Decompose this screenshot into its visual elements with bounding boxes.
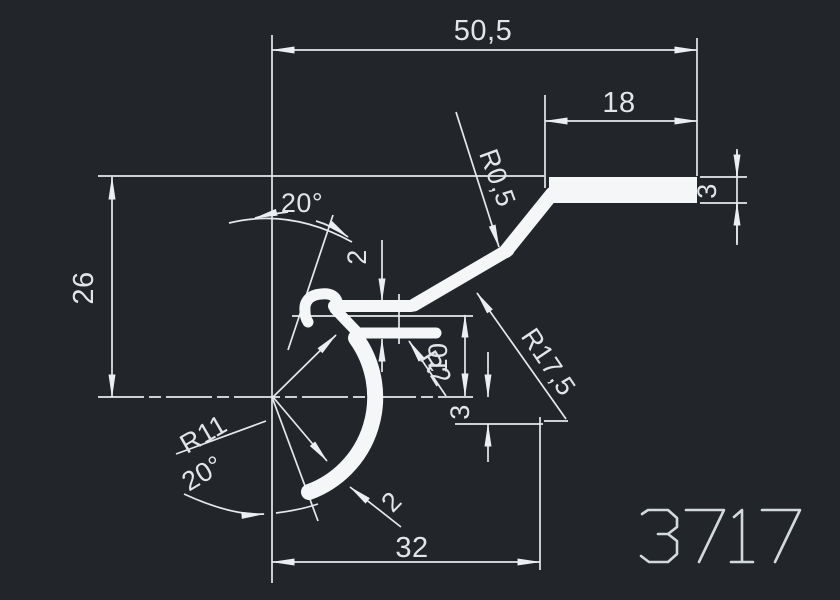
dim-text-20-bottom: 20° [176,450,228,498]
angle-arc-top [229,218,352,242]
dim-text-18: 18 [602,87,635,119]
digit-7-first [686,510,724,562]
profile-web [335,309,357,332]
digit-7-second [762,510,800,562]
dimension-texts: 50,5 18 3 26 20° 2 R0,5 R17,5 R2 10 3 R1… [68,15,722,564]
dim-text-2-top: 2 [342,249,372,265]
digit-3-upper [642,510,677,534]
dim-text-3-mid: 3 [445,404,475,420]
dim-text-10: 10 [423,342,453,373]
profile-drawing-3717: 50,5 18 3 26 20° 2 R0,5 R17,5 R2 10 3 R1… [0,0,840,600]
angle-ref-line-top [288,215,333,350]
angle-ref-line-bottom [272,397,318,521]
construction-lines [98,35,747,583]
angle-arc-top-right-arrow [316,221,348,237]
profile-wall-shallow [414,250,508,305]
wall-thickness-inner-pointer [273,397,327,461]
digit-1 [731,510,753,562]
angle-arc-bottom [276,504,318,513]
profile-arc-wall [309,338,375,492]
angle-leader-bottom [184,494,264,514]
profile-outline [305,177,697,492]
dim-text-50-5: 50,5 [454,15,512,47]
dim-text-r05: R0,5 [473,145,521,211]
dim-text-2-bottom: 2 [375,486,407,518]
r11-pointer-line [273,335,336,397]
profile-top-flange [549,177,697,203]
dim-text-26: 26 [68,271,100,304]
dim-text-32: 32 [395,532,428,564]
dim-text-20-top: 20° [281,188,323,218]
part-number-text: 3717 [641,510,800,562]
digit-3-lower [641,534,677,562]
cad-drawing-canvas: 50,5 18 3 26 20° 2 R0,5 R17,5 R2 10 3 R1… [0,0,840,600]
dim-text-3-right: 3 [692,183,722,199]
